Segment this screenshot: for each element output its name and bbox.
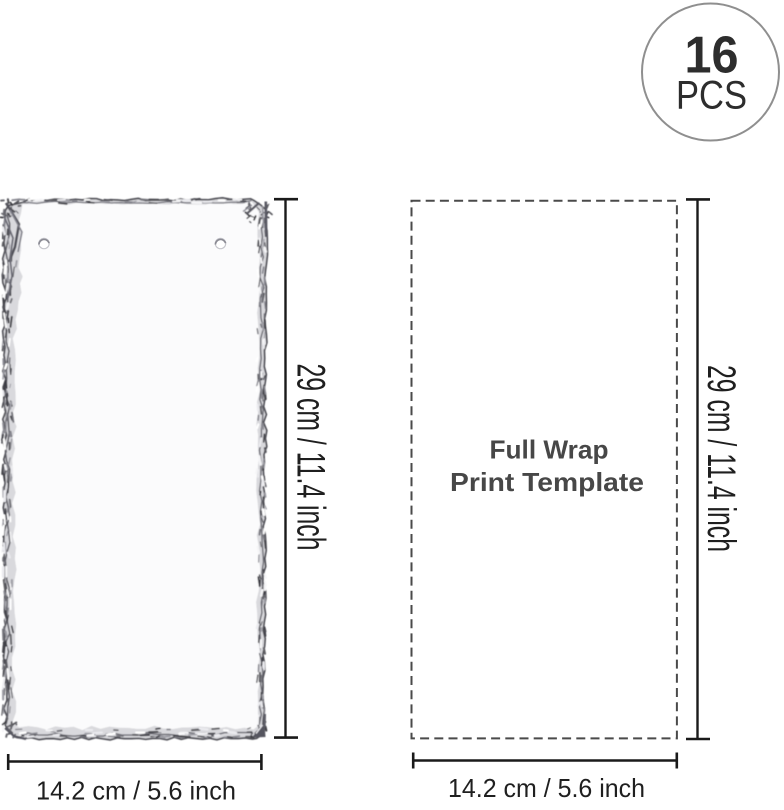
svg-text:14.2 cm / 5.6 inch: 14.2 cm / 5.6 inch xyxy=(36,776,236,806)
svg-text:PCS: PCS xyxy=(676,74,747,118)
svg-text:14.2 cm / 5.6 inch: 14.2 cm / 5.6 inch xyxy=(448,773,645,803)
svg-text:29 cm / 11.4 inch: 29 cm / 11.4 inch xyxy=(288,364,333,551)
svg-text:Print Template: Print Template xyxy=(450,467,644,497)
svg-text:Full Wrap: Full Wrap xyxy=(490,435,609,465)
svg-text:29 cm / 11.4 inch: 29 cm / 11.4 inch xyxy=(698,365,743,552)
